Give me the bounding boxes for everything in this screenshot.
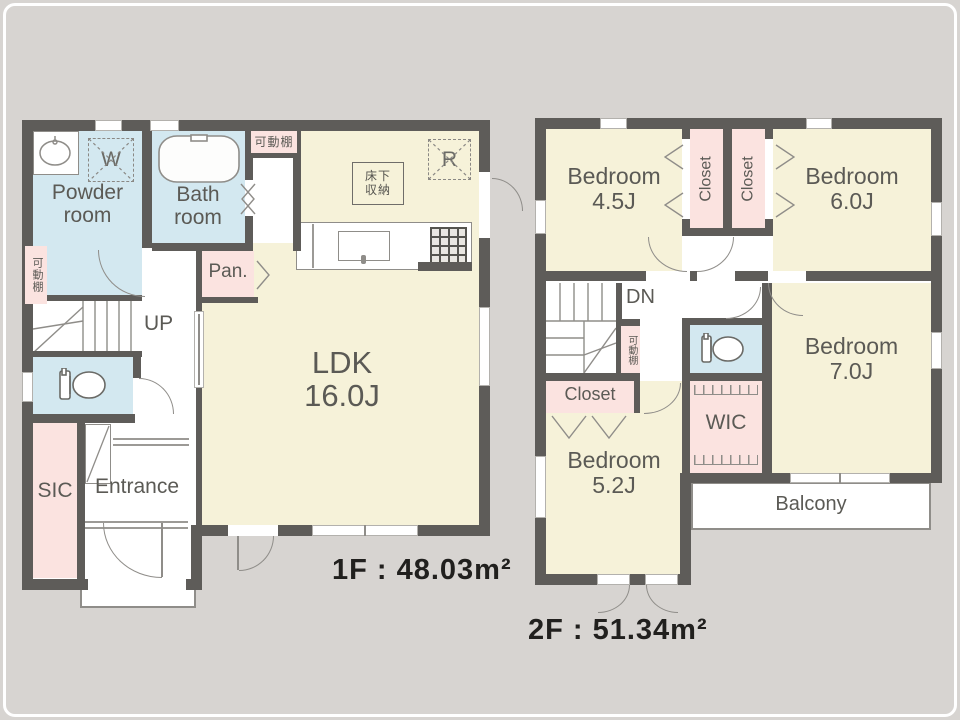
wall-segment — [22, 351, 142, 357]
wall-segment — [931, 118, 942, 483]
hall-step-line — [113, 438, 189, 440]
wall-segment — [690, 373, 762, 381]
wall-segment — [546, 373, 640, 381]
window — [535, 200, 546, 234]
bathtub-icon — [157, 134, 241, 189]
wall-segment — [33, 295, 142, 301]
wall-segment — [196, 388, 202, 525]
bedroom-45-label: Bedroom4.5J — [546, 164, 682, 214]
door-opening — [88, 579, 186, 590]
sliding-door-line — [198, 314, 200, 385]
wall-segment — [191, 525, 202, 590]
toilet-icon — [58, 368, 108, 407]
hall-step-line — [113, 444, 189, 446]
door-leaf — [161, 523, 163, 577]
floor-plan-canvas: W 床下 収納 R — [0, 0, 960, 720]
wic-label: WIC — [690, 412, 762, 435]
window-mullion — [364, 525, 366, 536]
window — [597, 574, 630, 585]
movable-shelf-label: 可動棚 — [621, 326, 640, 373]
folding-door-icon — [256, 260, 270, 290]
washer-space: W — [88, 138, 134, 182]
door-arc — [492, 178, 523, 211]
wall-segment — [682, 318, 690, 473]
fridge-space: R — [428, 139, 471, 180]
movable-shelf-label: 可動棚 — [25, 246, 47, 304]
ldk-label: LDK16.0J — [252, 346, 432, 413]
bedroom-60-label: Bedroom6.0J — [773, 164, 931, 214]
window-mullion — [839, 473, 841, 483]
wall-segment — [251, 153, 297, 158]
counter-divider — [312, 224, 314, 268]
window — [600, 118, 627, 129]
sic-label: SIC — [33, 480, 77, 503]
door-leaf — [237, 536, 239, 570]
hanger-rod-icon — [694, 385, 758, 395]
window — [535, 456, 546, 518]
wall-segment — [723, 129, 732, 228]
porch-step — [80, 590, 196, 608]
window — [150, 120, 179, 131]
hanger-rod-icon — [694, 455, 758, 465]
casement-arc — [598, 585, 630, 613]
bedroom-70-label: Bedroom7.0J — [772, 334, 931, 384]
entrance-label: Entrance — [85, 476, 189, 499]
wall-segment — [621, 319, 640, 326]
wall-segment — [546, 271, 646, 281]
wall-segment — [690, 271, 697, 281]
window — [95, 120, 122, 131]
toilet-icon — [700, 333, 746, 370]
wall-segment — [634, 381, 640, 413]
wall-segment — [682, 228, 773, 236]
stairs-up-label: UP — [144, 313, 184, 336]
window — [931, 202, 942, 236]
wall-segment — [806, 271, 931, 281]
stairs-down-label: DN — [626, 287, 670, 309]
door-opening — [479, 172, 490, 238]
balcony-label: Balcony — [691, 494, 931, 516]
folding-door-icon — [591, 415, 627, 439]
underfloor-label-1: 床下 — [365, 170, 391, 184]
wall-segment — [77, 414, 85, 579]
vanity-sink-icon — [33, 131, 79, 175]
closet-c-label: Closet — [546, 385, 634, 404]
wall-segment — [535, 118, 942, 129]
stairs-down-icon — [546, 283, 616, 378]
underfloor-label-2: 収納 — [365, 184, 391, 198]
closet-b-label: Closet — [732, 129, 765, 228]
window — [931, 332, 942, 369]
window — [479, 307, 490, 386]
underfloor-storage-box: 床下 収納 — [352, 162, 404, 205]
wall-segment — [196, 303, 202, 311]
movable-shelf-label: 可動棚 — [251, 131, 297, 153]
bath-room-label: Bathroom — [148, 184, 248, 229]
door-opening — [228, 525, 278, 536]
powder-room-label: Powderroom — [33, 182, 142, 227]
wall-segment — [735, 271, 768, 281]
counter-edge-shade — [418, 262, 472, 271]
floor1-area-text: 1F : 48.03m² — [332, 554, 512, 587]
folding-door-icon — [551, 415, 587, 439]
window — [22, 372, 33, 402]
wall-segment — [22, 120, 490, 131]
wall-segment — [152, 243, 253, 251]
floor2-area-text: 2F : 51.34m² — [528, 614, 708, 647]
closet-opening — [765, 139, 773, 219]
wall-segment — [690, 318, 762, 325]
door-arc — [239, 536, 274, 571]
wall-segment — [133, 357, 141, 378]
wall-segment — [196, 297, 258, 303]
window — [645, 574, 678, 585]
closet-a-label: Closet — [690, 129, 723, 228]
faucet-icon — [361, 255, 366, 264]
casement-arc — [646, 585, 678, 613]
window — [806, 118, 832, 129]
bedroom-52-label: Bedroom5.2J — [546, 448, 682, 498]
pantry-label: Pan. — [202, 262, 254, 283]
wall-segment — [762, 283, 772, 473]
